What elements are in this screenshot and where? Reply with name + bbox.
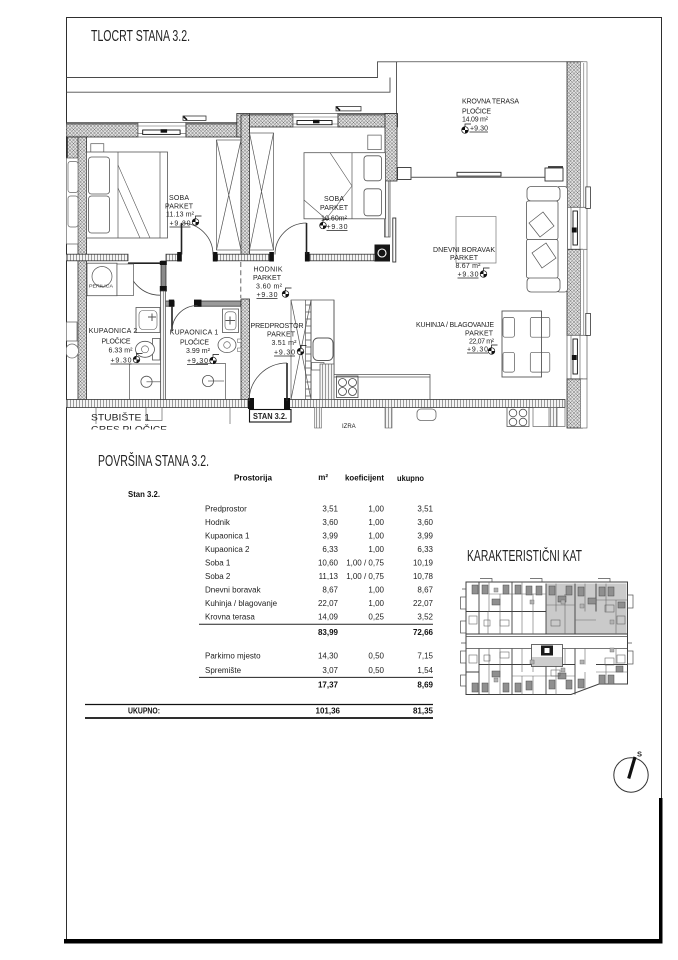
svg-text:+9.30: +9.30: [170, 221, 191, 228]
svg-text:+9.30: +9.30: [467, 347, 488, 354]
svg-text:3,99: 3,99: [322, 532, 338, 541]
svg-text:Kuhinja / blagovanje: Kuhinja / blagovanje: [205, 599, 278, 608]
svg-text:10,19: 10,19: [413, 559, 434, 568]
svg-text:POVRŠINA STANA 3.2.: POVRŠINA STANA 3.2.: [98, 451, 209, 470]
svg-text:14,30: 14,30: [318, 652, 339, 661]
svg-text:1,00: 1,00: [368, 532, 384, 541]
svg-text:PLOČICE: PLOČICE: [180, 338, 209, 347]
svg-text:TLOCRT STANA 3.2.: TLOCRT STANA 3.2.: [91, 28, 190, 45]
svg-text:Hodnik: Hodnik: [205, 518, 231, 527]
svg-text:22,07 m²: 22,07 m²: [469, 339, 495, 346]
svg-text:PARKET: PARKET: [253, 275, 282, 282]
svg-text:6,33: 6,33: [417, 545, 433, 554]
svg-text:10,60: 10,60: [318, 559, 339, 568]
svg-text:0,50: 0,50: [368, 652, 384, 661]
svg-text:KROVNA TERASA: KROVNA TERASA: [462, 99, 519, 106]
svg-text:0,25: 0,25: [368, 613, 384, 622]
svg-text:STUBIŠTE 1: STUBIŠTE 1: [91, 413, 150, 424]
svg-text:3.60 m²: 3.60 m²: [256, 284, 283, 291]
svg-text:1,00 / 0,75: 1,00 / 0,75: [346, 559, 384, 568]
svg-text:3,60: 3,60: [417, 518, 433, 527]
svg-text:83,99: 83,99: [318, 628, 339, 637]
svg-text:0,50: 0,50: [368, 666, 384, 675]
svg-text:3,07: 3,07: [322, 666, 338, 675]
svg-text:1,00: 1,00: [368, 505, 384, 514]
svg-text:PARKET: PARKET: [465, 331, 494, 338]
svg-text:Soba 1: Soba 1: [205, 559, 231, 568]
svg-text:1,00: 1,00: [368, 599, 384, 608]
svg-text:GRES PLOČICE: GRES PLOČICE: [91, 425, 167, 436]
svg-text:81,35: 81,35: [413, 707, 434, 716]
svg-text:3,51: 3,51: [322, 505, 338, 514]
svg-text:3,99: 3,99: [417, 532, 433, 541]
svg-text:8,67: 8,67: [322, 586, 338, 595]
svg-text:3,51: 3,51: [417, 505, 433, 514]
svg-text:m²: m²: [318, 473, 328, 482]
svg-text:Kupaonica 1: Kupaonica 1: [205, 532, 250, 541]
svg-text:PARKET: PARKET: [320, 205, 349, 212]
svg-text:Stan 3.2.: Stan 3.2.: [128, 490, 160, 499]
svg-text:ukupno: ukupno: [397, 474, 424, 483]
svg-text:PREDPROSTOR: PREDPROSTOR: [251, 323, 304, 330]
svg-text:3,52: 3,52: [417, 613, 433, 622]
svg-text:PARKET: PARKET: [165, 204, 194, 211]
svg-text:Soba 2: Soba 2: [205, 572, 231, 581]
svg-text:6.33 m²: 6.33 m²: [109, 348, 134, 355]
svg-text:PARKET: PARKET: [267, 332, 296, 339]
svg-text:KARAKTERISTIČNI KAT: KARAKTERISTIČNI KAT: [467, 546, 582, 565]
svg-text:3,60: 3,60: [322, 518, 338, 527]
svg-text:1,00: 1,00: [368, 518, 384, 527]
svg-text:KUPAONICA 2: KUPAONICA 2: [89, 328, 138, 335]
svg-text:Kupaonica 2: Kupaonica 2: [205, 545, 250, 554]
svg-text:+9.30: +9.30: [470, 126, 488, 133]
svg-text:1,54: 1,54: [417, 666, 433, 675]
svg-text:Prostorija: Prostorija: [234, 474, 273, 483]
svg-text:11,13: 11,13: [319, 572, 339, 581]
svg-text:+9.30: +9.30: [111, 358, 132, 365]
svg-text:3.51 m²: 3.51 m²: [272, 340, 298, 347]
svg-text:KUHINJA / BLAGOVANJE: KUHINJA / BLAGOVANJE: [416, 322, 494, 329]
svg-text:+9.30: +9.30: [257, 292, 278, 299]
svg-text:14.09 m²: 14.09 m²: [462, 117, 489, 124]
svg-text:1,00 / 0,75: 1,00 / 0,75: [346, 572, 384, 581]
svg-text:PERILICA: PERILICA: [89, 284, 114, 290]
svg-text:PLOČICE: PLOČICE: [102, 337, 131, 346]
svg-text:SOBA: SOBA: [169, 195, 189, 202]
svg-text:17,37: 17,37: [318, 681, 339, 690]
svg-text:8,69: 8,69: [417, 681, 433, 690]
svg-text:KUPAONICA 1: KUPAONICA 1: [170, 330, 219, 337]
svg-text:DNEVNI BORAVAK: DNEVNI BORAVAK: [433, 247, 495, 254]
svg-text:101,36: 101,36: [316, 707, 341, 716]
svg-text:Spremište: Spremište: [205, 666, 242, 675]
svg-text:10,78: 10,78: [413, 572, 434, 581]
svg-text:PLOČICE: PLOČICE: [462, 107, 491, 116]
svg-text:1,00: 1,00: [368, 545, 384, 554]
svg-text:koeficijent: koeficijent: [345, 474, 384, 483]
svg-text:HODNIK: HODNIK: [254, 267, 283, 274]
svg-text:1,00: 1,00: [368, 586, 384, 595]
svg-text:8.67 m²: 8.67 m²: [456, 263, 482, 270]
svg-text:S: S: [637, 750, 642, 759]
svg-text:72,66: 72,66: [413, 628, 434, 637]
svg-text:Dnevni boravak: Dnevni boravak: [205, 586, 262, 595]
svg-text:Krovna terasa: Krovna terasa: [205, 613, 255, 622]
svg-text:22,07: 22,07: [318, 599, 339, 608]
svg-text:14,09: 14,09: [318, 613, 339, 622]
svg-text:22,07: 22,07: [413, 599, 434, 608]
svg-text:IZRA: IZRA: [342, 424, 356, 430]
svg-text:+9.30: +9.30: [327, 224, 348, 231]
svg-text:6,33: 6,33: [322, 545, 338, 554]
svg-text:+9.30: +9.30: [187, 358, 208, 365]
svg-text:+9.30: +9.30: [274, 350, 295, 357]
svg-text:SOBA: SOBA: [324, 196, 344, 203]
svg-text:Parkirno mjesto: Parkirno mjesto: [205, 652, 261, 661]
svg-text:7,15: 7,15: [417, 652, 433, 661]
svg-text:8,67: 8,67: [417, 586, 433, 595]
svg-text:PARKET: PARKET: [450, 255, 479, 262]
svg-text:Predprostor: Predprostor: [205, 505, 247, 514]
svg-text:UKUPNO:: UKUPNO:: [128, 707, 160, 716]
svg-text:3.99 m²: 3.99 m²: [186, 348, 211, 355]
svg-text:10.60m²: 10.60m²: [321, 216, 348, 223]
svg-text:+9.30: +9.30: [458, 272, 479, 279]
svg-text:STAN 3.2.: STAN 3.2.: [253, 411, 287, 421]
svg-text:11.13 m²: 11.13 m²: [166, 212, 195, 219]
